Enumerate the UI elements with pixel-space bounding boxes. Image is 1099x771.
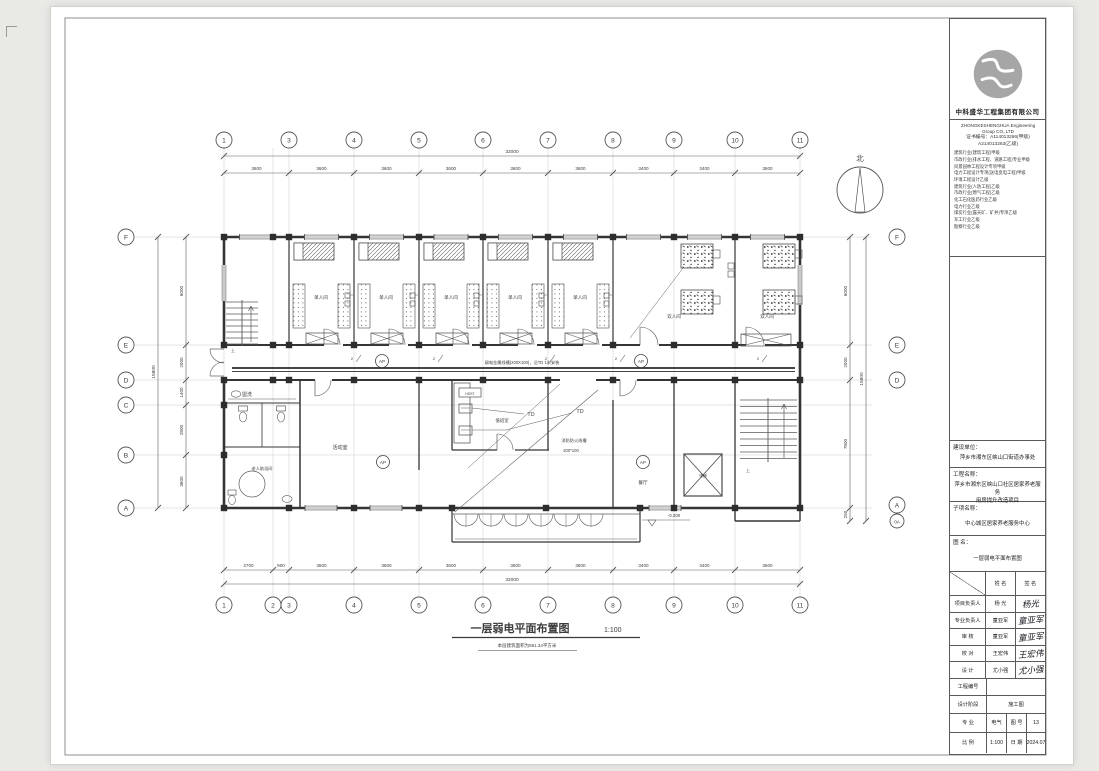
grid-bubble: 6 — [481, 137, 485, 144]
furniture: HDST上上 — [210, 243, 802, 542]
client-field: 建设单位： 萍乡市湘东区峡山口街道办事处 — [950, 441, 1045, 468]
dim-right-total: 15800 — [859, 372, 865, 386]
grid-bubble: 1 — [222, 602, 226, 609]
grid-bubble: D — [124, 377, 129, 384]
circuit-count: 2 — [433, 356, 436, 361]
sign-table-row: 审 核童亚军童亚军 — [950, 629, 1045, 646]
room-label-single: 单人间 — [573, 294, 587, 301]
company-name-en: ZHONGKESHENGHUA Engineering Group CO.,LT… — [954, 123, 1042, 135]
scale-value: 1:100 — [987, 733, 1007, 753]
grid-bubble: A — [124, 505, 129, 512]
plan-title: 一层弱电平面布置图1:100本层建筑面积为591.34平方米 — [452, 621, 640, 651]
dim-right: 7800 — [843, 438, 848, 449]
sheet-number-label: 图 号 — [1007, 714, 1027, 732]
signature-script: 王宏伟 — [1017, 646, 1043, 660]
empty-section — [950, 257, 1045, 441]
grid-bubble: 2 — [271, 602, 275, 609]
dim-top: 3400 — [638, 166, 649, 171]
dim-left: 2800 — [179, 424, 184, 435]
client-label: 建设单位： — [953, 443, 1042, 451]
qualification-item: 市政行业(燃气工程)乙级 — [954, 190, 1042, 197]
grid-bubble: F — [124, 234, 128, 241]
room-label-wash: 盥洗 — [242, 391, 252, 398]
grid-bubble: 5 — [417, 137, 421, 144]
grid-lines — [134, 148, 872, 597]
room-label-bath: 老人助浴间 — [252, 465, 273, 472]
sign-name: 童亚军 — [986, 629, 1015, 645]
cable-tray-label: 弱电金属线槽(200X100)，沿TD 1米安装 — [485, 359, 561, 366]
grid-bubble: 10 — [731, 602, 739, 609]
ap-symbol: AP — [638, 359, 644, 364]
project-number-label: 工程编号 — [950, 679, 987, 695]
company-logo-section: 中科盛华工程集团有限公司 — [950, 19, 1045, 120]
sign-role: 设 计 — [950, 662, 986, 678]
dim-bottom: 3600 — [762, 563, 773, 568]
dim-left: 6000 — [179, 285, 184, 296]
dim-bottom: 3600 — [316, 563, 327, 568]
dim-bottom: 2700 — [243, 563, 254, 568]
project-field: 工程名称： 萍乡市湘东区峡山口社区居家养老服务 用房提升改造项目 — [950, 468, 1045, 502]
dim-bottom: 3600 — [446, 563, 457, 568]
sign-table-row: 项目负责人杨 光杨光 — [950, 596, 1045, 613]
plan-subtitle: 本层建筑面积为591.34平方米 — [498, 642, 557, 649]
signature-script: 杨光 — [1021, 597, 1039, 610]
grid-bubble: B — [124, 452, 129, 459]
grid-bubble: E — [124, 342, 129, 349]
ap-symbol: AP — [379, 359, 385, 364]
dim-bottom: 3400 — [638, 563, 649, 568]
grid-bubble: C — [124, 402, 129, 409]
grid-bubble: 9 — [672, 137, 676, 144]
ap-symbol: AP — [380, 460, 386, 465]
drawing-name-label: 图 名： — [953, 538, 1042, 546]
sign-table-row: 专业负责人童亚军童亚军 — [950, 613, 1045, 630]
room-label-double: 双人间 — [667, 313, 681, 320]
dim-left: 2000 — [179, 357, 184, 368]
floor-plan-canvas: 3200036003600360036003600360034003400360… — [0, 0, 1099, 771]
room-label-activity: 活动室 — [332, 444, 347, 451]
title-block: 中科盛华工程集团有限公司 ZHONGKESHENGHUA Engineering… — [949, 18, 1046, 755]
discipline-row: 专 业 电气 图 号 13 — [950, 714, 1045, 733]
subitem-value: 中心城区居家养老服务中心 — [953, 520, 1042, 528]
signature-script: 童亚军 — [1017, 613, 1043, 627]
fire-tray-label: 消防防火线槽 — [561, 437, 587, 444]
signature: 杨光 — [1016, 596, 1045, 612]
qualification-item: 煤炭行业(露天矿、矿井)专项乙级 — [954, 210, 1042, 217]
room-labels: 单人间单人间单人间单人间单人间双人间双人间盥洗老人助浴间活动室值班室餐厅电梯 — [242, 294, 774, 486]
plan-title-text: 一层弱电平面布置图 — [471, 621, 570, 635]
dim-right: 2000 — [843, 357, 848, 368]
ap-symbol: AP — [640, 460, 646, 465]
stair-up-label: 上 — [231, 347, 235, 353]
sign-name: 童亚军 — [986, 613, 1015, 629]
room-label-single: 单人间 — [508, 294, 522, 301]
discipline-value: 电气 — [987, 714, 1007, 732]
dim-bottom: 3600 — [510, 563, 521, 568]
design-stage-value: 施工图 — [987, 696, 1045, 713]
sign-table-header: 姓 名 签 名 — [950, 572, 1045, 596]
grid-bubble: D — [895, 377, 900, 384]
dim-bottom: 3600 — [381, 563, 392, 568]
room-label-double: 双人间 — [760, 313, 774, 320]
qualification-item: 电力工程设计专项(送电变电工程)甲级 — [954, 170, 1042, 177]
grid-bubble: 11 — [797, 137, 804, 144]
dim-top: 3600 — [510, 166, 521, 171]
sign-table-diagonal-cell — [950, 572, 986, 595]
discipline-label: 专 业 — [950, 714, 987, 732]
grid-bubbles: 1345678910111234567891011FEDCBAFEDA0A — [118, 132, 905, 613]
sign-table-row: 设 计尤小强尤小强 — [950, 662, 1045, 679]
dim-top: 3600 — [575, 166, 586, 171]
dim-left: 3600 — [179, 476, 184, 487]
grid-bubble: 9 — [672, 602, 676, 609]
dim-right: 250 — [843, 510, 848, 518]
signature-script: 童亚军 — [1017, 630, 1043, 644]
client-value: 萍乡市湘东区峡山口街道办事处 — [953, 454, 1042, 462]
sign-table-name-header: 姓 名 — [986, 572, 1015, 595]
grid-bubble: 4 — [352, 137, 356, 144]
design-stage-label: 设计阶段 — [950, 696, 987, 713]
td-label: TD — [527, 412, 534, 418]
signature: 童亚军 — [1016, 629, 1045, 645]
sign-table-sign-header: 签 名 — [1016, 572, 1045, 595]
plan-title-scale: 1:100 — [604, 627, 622, 634]
dim-bottom: 3400 — [699, 563, 710, 568]
td-label: TD — [576, 409, 583, 415]
level-annotation: -0.300 — [668, 513, 681, 518]
qualification-list: 建筑行业(建筑工程)甲级市政行业(排水工程、道路工程)专业甲级风景园林工程设计专… — [954, 150, 1042, 230]
grid-bubble: 5 — [417, 602, 421, 609]
dim-top-total: 32000 — [505, 149, 519, 155]
scanned-drawing-sheet: { "company": { "name_cn": "中科盛华工程集团有限公司"… — [0, 0, 1099, 771]
fire-tray-size: 200*100 — [563, 448, 579, 453]
hdst-label: HDST — [465, 392, 474, 396]
sign-name: 尤小强 — [986, 662, 1015, 678]
signature-script: 尤小强 — [1017, 663, 1043, 677]
sign-role: 校 对 — [950, 646, 986, 662]
scale-date-row: 比 例 1:100 日 期 2024.07 — [950, 733, 1045, 753]
dim-bottom: 900 — [277, 563, 285, 568]
project-value-line1: 萍乡市湘东区峡山口社区居家养老服务 — [953, 481, 1042, 497]
qualification-item: 市政行业(排水工程、道路工程)专业甲级 — [954, 157, 1042, 164]
grid-bubble: 8 — [611, 602, 615, 609]
date-label: 日 期 — [1007, 733, 1027, 753]
grid-bubble: 6 — [481, 602, 485, 609]
sign-name: 杨 光 — [986, 596, 1015, 612]
circuit-count: 2 — [351, 356, 354, 361]
grid-bubble: 3 — [287, 602, 291, 609]
qualification-item: 勘察行业乙级 — [954, 224, 1042, 231]
dim-left-total: 15800 — [151, 365, 157, 379]
grid-bubble: 4 — [352, 602, 356, 609]
grid-bubble: 11 — [797, 602, 804, 609]
stair-up-label: 上 — [746, 467, 750, 473]
grid-bubble: 3 — [287, 137, 291, 144]
north-label: 北 — [856, 154, 864, 163]
qualification-item: 建筑行业(建筑工程)甲级 — [954, 150, 1042, 157]
north-arrow: 北 — [837, 154, 883, 213]
dim-top: 3600 — [316, 166, 327, 171]
project-number-value — [987, 679, 1045, 695]
project-number-row: 工程编号 — [950, 679, 1045, 696]
project-label: 工程名称： — [953, 470, 1042, 478]
sign-table-row: 校 对王宏伟王宏伟 — [950, 646, 1045, 663]
grid-bubble: E — [895, 342, 900, 349]
room-label-duty: 值班室 — [495, 417, 509, 424]
dim-top: 3600 — [381, 166, 392, 171]
qualification-item: 化工石化医药行业乙级 — [954, 197, 1042, 204]
cert-number-2: A214013263(乙级) — [954, 142, 1042, 149]
cert-number-1: 证书编号：A114013266(甲级) — [954, 135, 1042, 142]
grid-bubble: A — [895, 502, 900, 509]
dim-top: 3600 — [762, 166, 773, 171]
grid-bubble: 1 — [222, 137, 226, 144]
grid-bubble: 7 — [546, 602, 550, 609]
dim-left: 1400 — [179, 387, 184, 398]
dim-bottom-total: 32000 — [505, 577, 519, 583]
room-label-single: 单人间 — [379, 294, 393, 301]
dim-top: 3400 — [699, 166, 710, 171]
dim-top: 3600 — [446, 166, 457, 171]
sign-table-rows: 项目负责人杨 光杨光专业负责人童亚军童亚军审 核童亚军童亚军校 对王宏伟王宏伟设… — [950, 596, 1045, 679]
grid-bubble: 10 — [731, 137, 739, 144]
company-name-cn: 中科盛华工程集团有限公司 — [956, 106, 1040, 116]
dim-bottom: 3600 — [575, 563, 586, 568]
room-label-elevator: 电梯 — [699, 473, 707, 478]
sheet-number-value: 13 — [1027, 714, 1045, 732]
sign-name: 王宏伟 — [986, 646, 1015, 662]
company-cert-section: ZHONGKESHENGHUA Engineering Group CO.,LT… — [950, 120, 1045, 257]
grid-bubble: 7 — [546, 137, 550, 144]
sign-role: 专业负责人 — [950, 613, 986, 629]
circuit-count: 2 — [757, 356, 760, 361]
signature: 尤小强 — [1016, 662, 1045, 678]
room-label-single: 单人间 — [314, 294, 328, 301]
scale-label: 比 例 — [950, 733, 987, 753]
room-label-single: 单人间 — [444, 294, 458, 301]
company-logo-icon — [970, 46, 1026, 102]
design-stage-row: 设计阶段 施工图 — [950, 696, 1045, 714]
signature: 童亚军 — [1016, 613, 1045, 629]
walls — [221, 234, 803, 521]
sign-role: 项目负责人 — [950, 596, 986, 612]
qualification-item: 军工行业乙级 — [954, 217, 1042, 224]
signature: 王宏伟 — [1016, 646, 1045, 662]
room-label-dining: 餐厅 — [638, 479, 648, 486]
dim-right: 6000 — [843, 285, 848, 296]
sign-role: 审 核 — [950, 629, 986, 645]
drawing-name-value: 一层弱电平面布置图 — [953, 555, 1042, 563]
subitem-label: 子项名称： — [953, 504, 1042, 512]
subitem-field: 子项名称： 中心城区居家养老服务中心 — [950, 502, 1045, 536]
grid-bubble: 0A — [894, 519, 901, 524]
circuit-count: 2 — [615, 356, 618, 361]
grid-bubble: F — [895, 234, 899, 241]
date-value: 2024.07 — [1027, 733, 1045, 753]
drawing-name-field: 图 名： 一层弱电平面布置图 — [950, 536, 1045, 572]
qualification-item: 环境工程设计乙级 — [954, 177, 1042, 184]
grid-bubble: 8 — [611, 137, 615, 144]
dim-top: 3600 — [251, 166, 262, 171]
